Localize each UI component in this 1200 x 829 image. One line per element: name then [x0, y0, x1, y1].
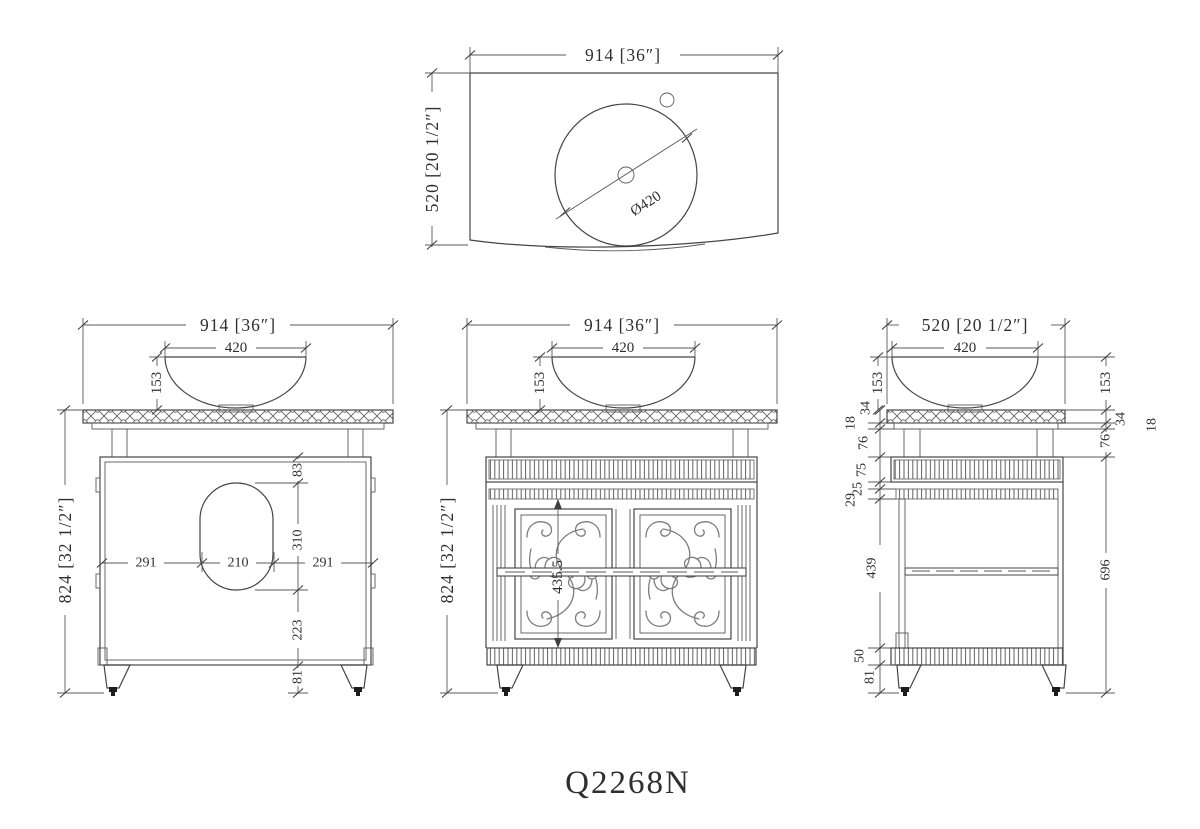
back-bowl-height-dimension: 153 [149, 353, 165, 415]
side-view: 520 [20 1/2″] 420 153 [844, 315, 1160, 698]
riser-back [904, 429, 920, 457]
leg-foot [109, 687, 362, 696]
leg [341, 665, 367, 688]
riser-left [112, 429, 127, 457]
dim-cabinet-with-legs: 696 [1099, 560, 1114, 581]
trim-strip-fluting [489, 489, 754, 499]
bottom-band-fluting [891, 648, 1063, 665]
leg [1042, 665, 1066, 688]
sink-bowl-plan [555, 104, 697, 246]
dim-front-width: 914 [36″] [584, 315, 660, 335]
top-view: Ø420 914 [36″] 520 [20 1/2″] [422, 45, 783, 251]
bowl-body [892, 357, 1038, 408]
bowl-body [552, 357, 695, 408]
dim-riser-right: 76 [1099, 434, 1114, 448]
back-horizontal-dimensions: 291 210 291 [97, 552, 378, 572]
top-band-fluting [489, 460, 754, 479]
dim-subtop-left: 18 [844, 416, 859, 430]
faucet-hole [660, 93, 674, 107]
plumbing-cutout [200, 483, 273, 590]
dim-front-bowl-height: 153 [532, 372, 548, 395]
dim-sink-diameter: Ø420 [628, 188, 665, 220]
bowl-body [165, 357, 306, 408]
bottom-band-fluting [487, 648, 756, 665]
sink-diameter-dimension: Ø420 [556, 129, 697, 220]
riser-front [1037, 429, 1053, 457]
leg [104, 665, 130, 688]
dim-counter-left: 34 [859, 401, 874, 415]
riser-left [496, 429, 511, 457]
leg [720, 665, 746, 688]
corner-block [98, 648, 107, 665]
front-bowl-height-dimension: 153 [532, 353, 552, 415]
dim-opening-height: 439 [865, 558, 880, 579]
model-number-title: Q2268N [565, 765, 691, 801]
back-width-dimension: 914 [36″] [78, 315, 398, 404]
dim-cutout-top: 83 [291, 463, 306, 477]
subtop-board [92, 423, 384, 429]
dim-side-bowl-height-left: 153 [870, 372, 886, 395]
drain-hole [618, 167, 634, 183]
vanity-technical-drawing: Ø420 914 [36″] 520 [20 1/2″] [0, 0, 1200, 829]
door-height-dimension: 435.5 [550, 499, 566, 648]
countertop-section [83, 410, 393, 423]
dim-back-bowl-height: 153 [149, 372, 165, 395]
dim-trim-strip: 29 [844, 493, 859, 507]
back-cutout-vertical-dimensions: 83 310 223 81 [255, 453, 308, 698]
dim-front-overall-height: 824 [32 1/2″] [437, 497, 457, 604]
corner-block [364, 648, 373, 665]
drawing-sheet: Ø420 914 [36″] 520 [20 1/2″] [0, 0, 1200, 829]
top-band-fluting [894, 460, 1060, 479]
front-bowl-width-dimension: 420 [547, 340, 700, 357]
dim-back-overall-height: 824 [32 1/2″] [55, 497, 75, 604]
back-panel [899, 499, 905, 648]
dim-cutout-width: 210 [228, 556, 249, 571]
back-block [896, 633, 908, 648]
countertop-section [887, 410, 1065, 423]
dim-dist-left: 291 [136, 556, 157, 571]
dim-side-leg-height: 81 [863, 670, 878, 684]
top-width-dimension: 914 [36″] [465, 45, 783, 73]
dim-top-band: 75 [855, 463, 870, 477]
subtop-board [894, 423, 1058, 429]
leg-foot [502, 687, 741, 696]
dim-top-depth: 520 [20 1/2″] [422, 106, 442, 213]
riser-right [348, 429, 363, 457]
subtop-board [476, 423, 768, 429]
dim-door-height: 435.5 [550, 560, 566, 594]
front-width-dimension: 914 [36″] [462, 315, 782, 404]
leg-foot [901, 687, 1060, 696]
dim-front-bowl-width: 420 [612, 340, 635, 356]
riser-right [733, 429, 748, 457]
leg [897, 665, 921, 688]
countertop-section [467, 410, 777, 423]
dim-side-depth: 520 [20 1/2″] [922, 315, 1029, 335]
back-bowl-width-dimension: 420 [160, 340, 311, 357]
towel-bar [497, 568, 746, 576]
trim-strip-fluting [896, 489, 1058, 499]
dim-top-width: 914 [36″] [585, 45, 661, 65]
countertop-plan-outline [470, 73, 778, 247]
front-view: 914 [36″] 420 153 824 [32 1/2″] [437, 315, 782, 698]
top-depth-dimension: 520 [20 1/2″] [422, 69, 470, 250]
dim-back-width: 914 [36″] [200, 315, 276, 335]
back-view: 914 [36″] 420 153 824 [32 1/2″] [55, 315, 398, 698]
dim-subtop-right: 18 [1145, 418, 1160, 432]
shelf [905, 568, 1058, 575]
side-right-dimension-stack: 153 34 76 18 696 [1038, 353, 1160, 698]
dim-dist-right: 291 [313, 556, 334, 571]
dim-back-bowl-width: 420 [225, 340, 248, 356]
dim-riser-left: 76 [857, 436, 872, 450]
dim-side-bowl-height-right: 153 [1098, 372, 1114, 395]
dim-cutout-bottom: 223 [291, 620, 306, 641]
side-bowl-width-dimension: 420 [887, 340, 1043, 357]
dim-bottom-band: 50 [853, 649, 868, 663]
dim-cutout-height: 310 [291, 530, 306, 551]
dim-back-leg-height: 81 [291, 670, 306, 684]
dim-side-bowl-width: 420 [954, 340, 977, 356]
dim-counter-right: 34 [1114, 412, 1129, 426]
back-height-dimension: 824 [32 1/2″] [55, 406, 104, 698]
leg [497, 665, 523, 688]
